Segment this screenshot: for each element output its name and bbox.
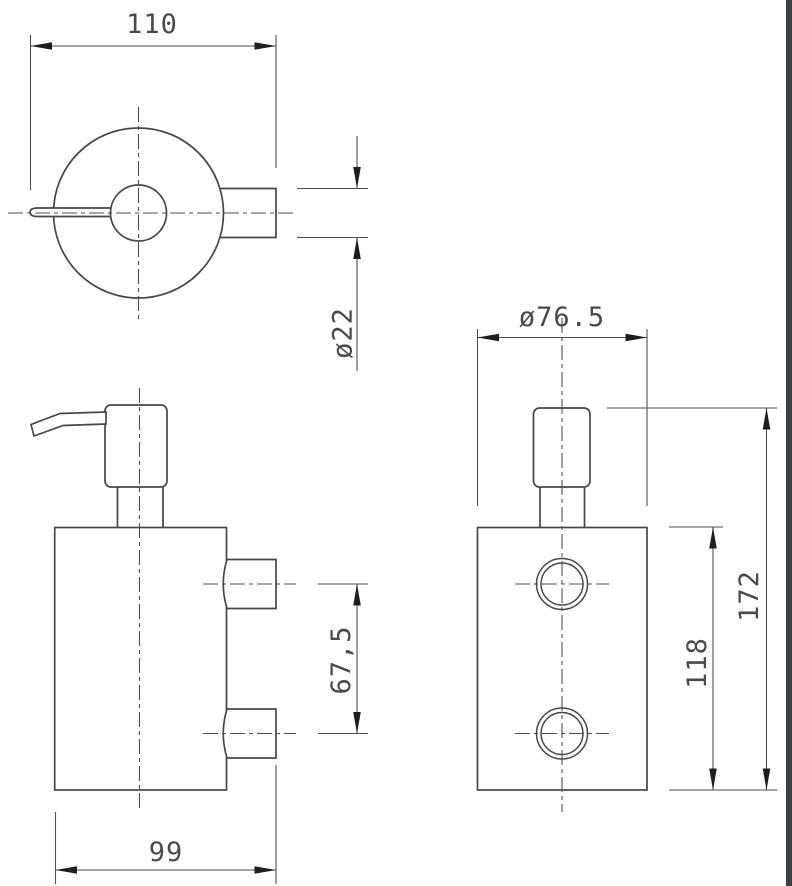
dimension-118-arrow-bottom	[709, 769, 717, 791]
dimension-dia22-label: ø22	[328, 307, 359, 359]
dimension-dia76-5-arrow-left	[478, 334, 500, 342]
technical-drawing: 110 ø22 ø76.5	[0, 0, 792, 886]
dimension-dia22-arrow-bottom	[353, 238, 361, 260]
front-view-pump-neck	[118, 487, 164, 528]
dimension-99-arrow-right	[255, 866, 277, 874]
dimension-dia22: ø22	[297, 136, 368, 371]
front-view	[31, 388, 296, 812]
dimension-110-arrow-right	[255, 42, 277, 50]
dimension-118: 118	[669, 527, 723, 790]
dimension-118-arrow-top	[709, 527, 717, 549]
dimension-110: 110	[31, 9, 277, 190]
dimension-99-label: 99	[149, 837, 184, 868]
dimension-110-arrow-left	[31, 42, 53, 50]
dimension-99-arrow-left	[56, 866, 78, 874]
dimension-67-5: 67,5	[318, 584, 368, 734]
dimension-172-arrow-bottom	[763, 769, 771, 791]
front-view-pump-head	[105, 405, 167, 487]
dimension-dia76-5-arrow-right	[626, 334, 648, 342]
dimension-172: 172	[607, 408, 777, 790]
dimension-dia22-arrow-top	[353, 167, 361, 189]
dimension-67-5-label: 67,5	[326, 625, 357, 694]
window-border-bar	[786, 0, 792, 886]
dimension-172-label: 172	[734, 570, 765, 622]
dimension-172-arrow-top	[763, 408, 771, 430]
side-view	[478, 318, 648, 812]
top-view-spout	[30, 208, 111, 217]
dimension-dia22-extension-lines	[297, 189, 368, 238]
top-view	[8, 107, 297, 322]
dimension-67-5-arrow-top	[353, 584, 361, 606]
dimension-dia76-5-label: ø76.5	[519, 302, 605, 333]
dimension-110-label: 110	[126, 9, 178, 40]
dimension-67-5-arrow-bottom	[353, 712, 361, 734]
dimension-118-label: 118	[682, 637, 713, 689]
front-view-spout	[31, 412, 106, 436]
dimension-99: 99	[56, 765, 277, 884]
front-view-body	[55, 528, 227, 791]
drawing-canvas: 110 ø22 ø76.5	[0, 0, 792, 886]
